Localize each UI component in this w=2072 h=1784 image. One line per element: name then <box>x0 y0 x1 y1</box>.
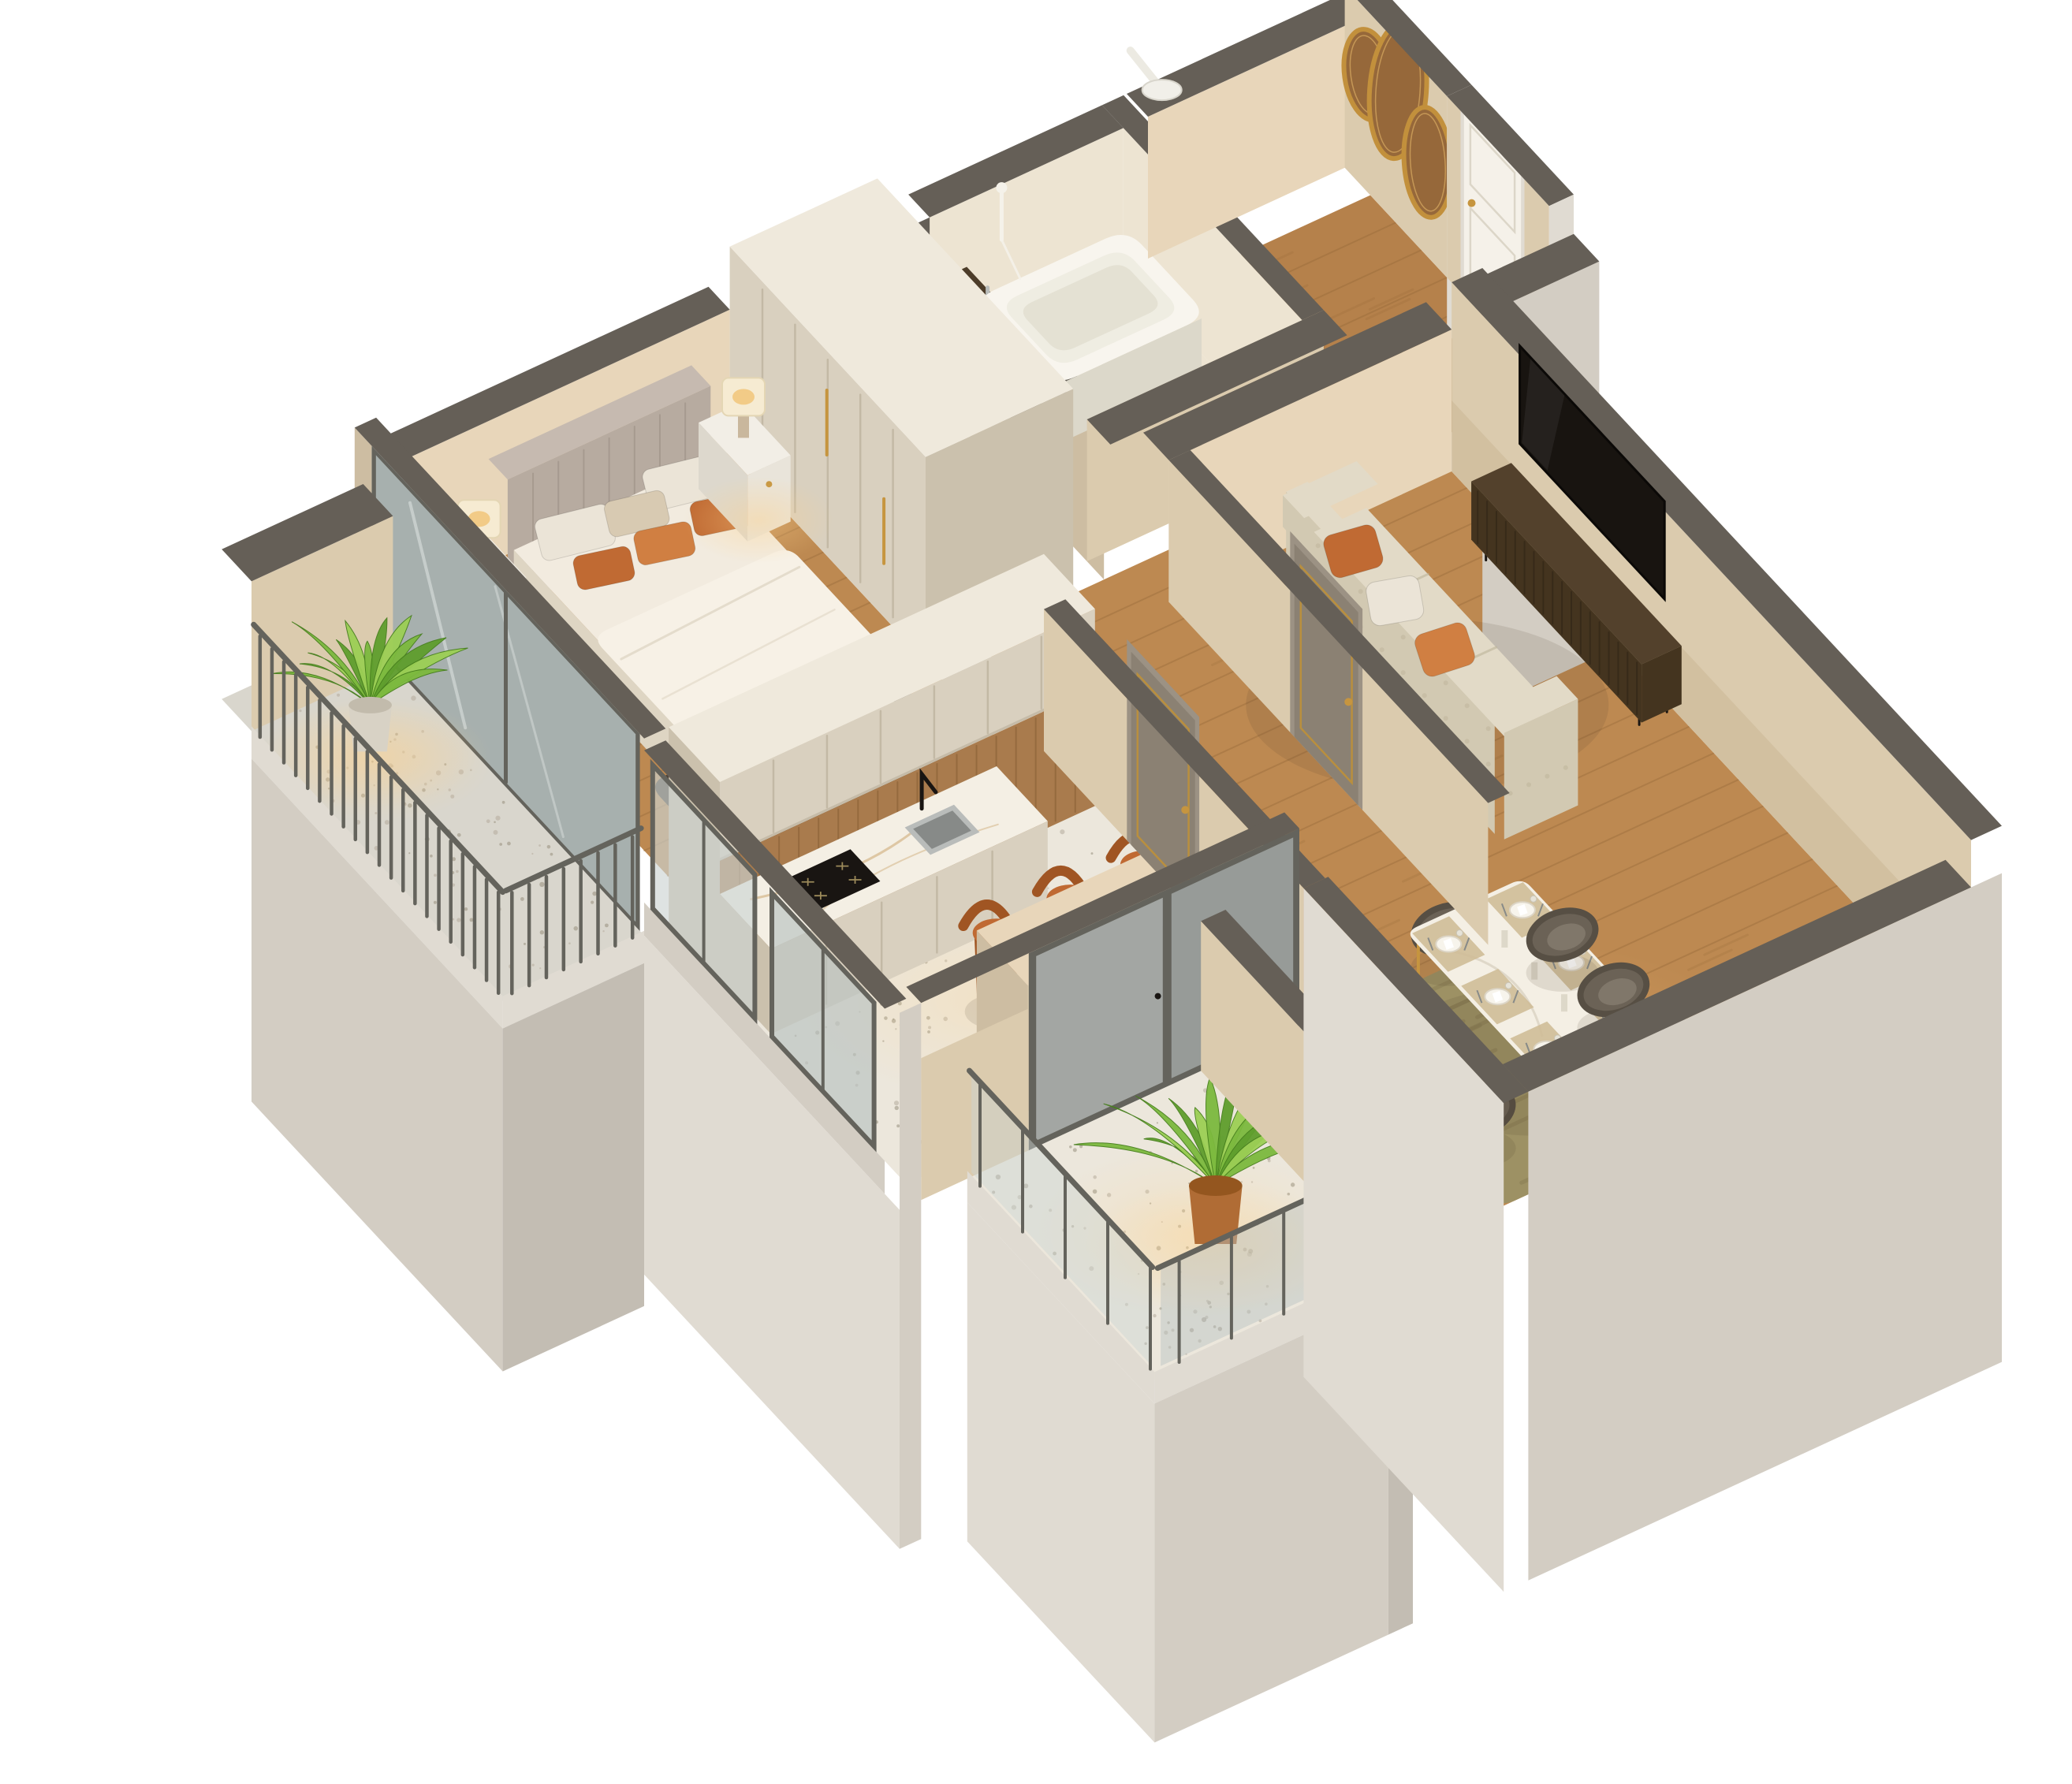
table-candle <box>1501 930 1507 948</box>
balcony-left-floor-speckle <box>538 844 541 847</box>
place-1-glass <box>1456 930 1463 937</box>
sofa-tuft <box>1486 762 1491 766</box>
sofa-arm-tuft <box>1526 782 1531 787</box>
table-lamp-right-base <box>738 414 749 438</box>
balcony-bottom-floor-speckle <box>1157 1122 1158 1123</box>
sofa-tuft <box>1401 635 1406 639</box>
balcony-left-floor-speckle <box>502 801 505 804</box>
lb-ext-south <box>503 963 644 1372</box>
balcony-left-floor-speckle <box>539 882 544 887</box>
balcony-bottom-floor-speckle <box>1073 1148 1077 1152</box>
balcony-left-floor-speckle <box>520 897 524 901</box>
warm-glow <box>684 477 833 564</box>
table-candle <box>1561 994 1567 1011</box>
balcony-left-floor-speckle <box>464 907 468 911</box>
place-4-glass <box>1530 896 1537 902</box>
balcony-left-floor-speckle <box>337 694 340 697</box>
balcony-left-floor-speckle <box>434 901 437 904</box>
balcony-left-floor-speckle <box>532 963 535 966</box>
balcony-left-floor-speckle <box>568 942 571 944</box>
sofa-tuft <box>1358 589 1363 594</box>
balcony-left-floor-speckle <box>507 842 511 846</box>
balcony-left-floor-speckle <box>550 853 553 856</box>
place-2-glass <box>1505 982 1511 989</box>
sofa-tuft <box>1444 716 1448 721</box>
balcony-left-floor-speckle <box>408 852 410 854</box>
kitchen-floor-speckle <box>895 1106 899 1110</box>
sofa-pillow-white <box>1365 575 1425 628</box>
sofa-tuft <box>1422 693 1427 698</box>
balcony-left-floor-speckle <box>434 873 437 877</box>
sofa-tuft <box>1465 703 1470 708</box>
balcony-left-floor-speckle <box>591 901 594 904</box>
balcony-left-floor-speckle <box>573 926 578 931</box>
kitchen-floor-speckle <box>894 1101 899 1105</box>
table-lamp-right-bulb <box>732 389 755 404</box>
roof-vent <box>1142 80 1182 100</box>
balcony-left-floor-speckle <box>592 892 597 896</box>
balcony-left-floor-speckle <box>430 855 433 858</box>
sofa-arm-tuft <box>1563 765 1568 770</box>
balcony-left-floor-speckle <box>499 843 502 846</box>
floorplan-3d-render <box>0 0 2072 1784</box>
balcony-left-floor-speckle <box>457 833 461 837</box>
balcony-left-floor-speckle <box>494 821 496 824</box>
sofa-tuft <box>1380 647 1384 652</box>
sw-corner-ext <box>900 1003 921 1549</box>
balcony-left-floor-speckle <box>605 923 609 927</box>
isometric-scene <box>0 0 2072 1784</box>
balcony-left-floor-speckle <box>494 830 498 835</box>
balcony-left-floor-speckle <box>547 845 551 849</box>
balcony-left-floor-speckle <box>524 943 526 945</box>
sofa-tuft <box>1465 739 1470 743</box>
balcony-left-floor-speckle <box>456 870 459 873</box>
balcony-left-floor-speckle <box>531 853 533 855</box>
balcony-left-plant-pot-top <box>348 697 392 713</box>
balcony-left-floor-speckle <box>470 918 474 922</box>
slider-handle <box>1155 993 1161 1000</box>
sofa-tuft <box>1444 680 1448 685</box>
balcony-left-floor-speckle <box>486 819 490 823</box>
balcony-left-floor-speckle <box>602 930 604 932</box>
kitchen-floor-speckle <box>896 1124 900 1127</box>
front-door-knob <box>1468 199 1476 207</box>
balcony-bottom-floor-speckle <box>1069 1145 1072 1149</box>
bedroom-door-handle <box>1181 806 1189 814</box>
kitchen-floor-speckle <box>1060 829 1064 834</box>
sofa-tuft <box>1401 670 1406 675</box>
shower-head <box>996 182 1007 193</box>
balcony-left-floor-speckle <box>539 967 541 969</box>
sofa-arm-tuft <box>1545 774 1549 779</box>
balcony-left-floor-speckle <box>457 918 460 922</box>
balcony-left-floor-speckle <box>495 816 500 821</box>
sofa-tuft <box>1486 726 1491 731</box>
balcony-left-floor-speckle <box>540 930 544 934</box>
balcony-bottom-plant-pot-top <box>1189 1175 1243 1196</box>
living-door-handle <box>1344 698 1352 706</box>
kitchen-floor-speckle <box>1090 852 1093 855</box>
sofa-tuft <box>1316 543 1321 548</box>
